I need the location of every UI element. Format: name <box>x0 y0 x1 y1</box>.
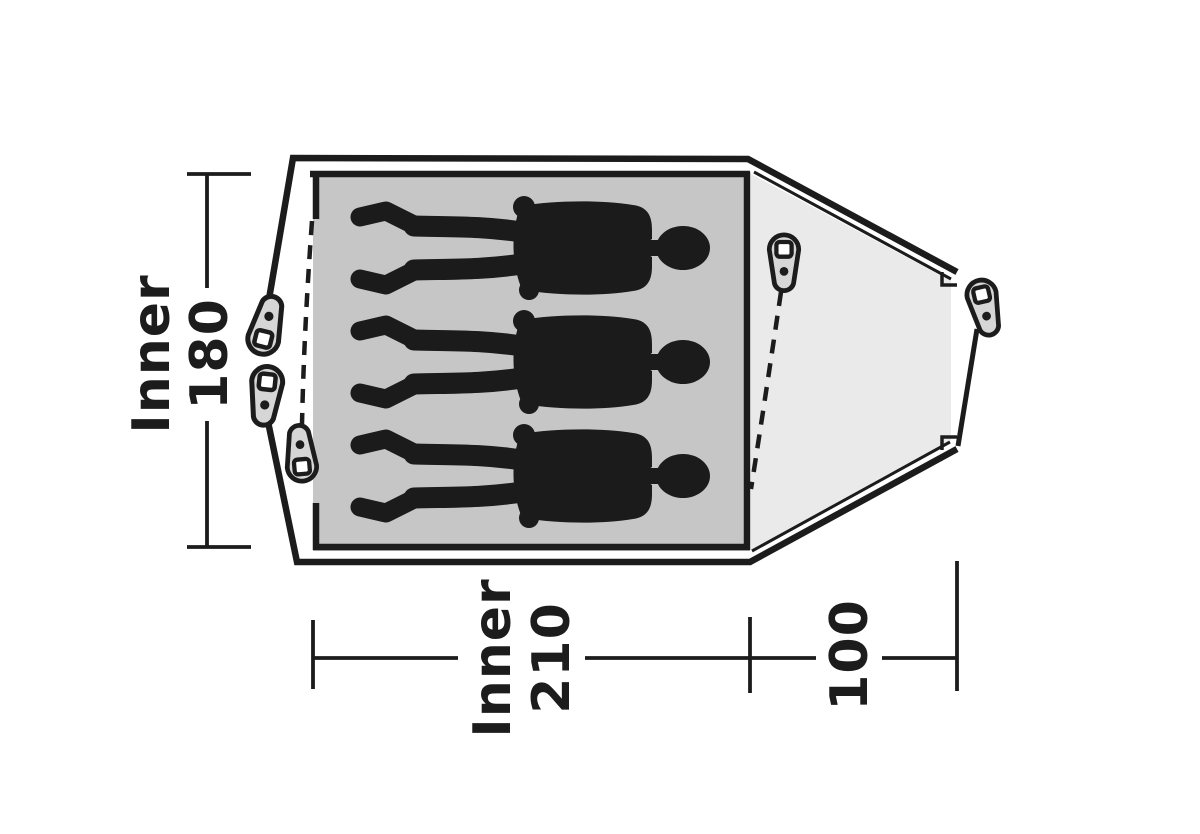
tent-peg-icon <box>769 235 798 291</box>
inner-width-label-value: 180 <box>180 298 240 410</box>
inner-length-label-value: 210 <box>522 602 582 714</box>
tent-floorplan-diagram: Inner 180 Inner 210 100 <box>0 0 1200 834</box>
inner-length-label-word: Inner <box>463 578 523 737</box>
tent-floorplan-page: Inner 180 Inner 210 100 <box>0 0 1200 834</box>
porch-depth-label-value: 100 <box>820 599 880 711</box>
inner-width-label-word: Inner <box>122 274 182 433</box>
